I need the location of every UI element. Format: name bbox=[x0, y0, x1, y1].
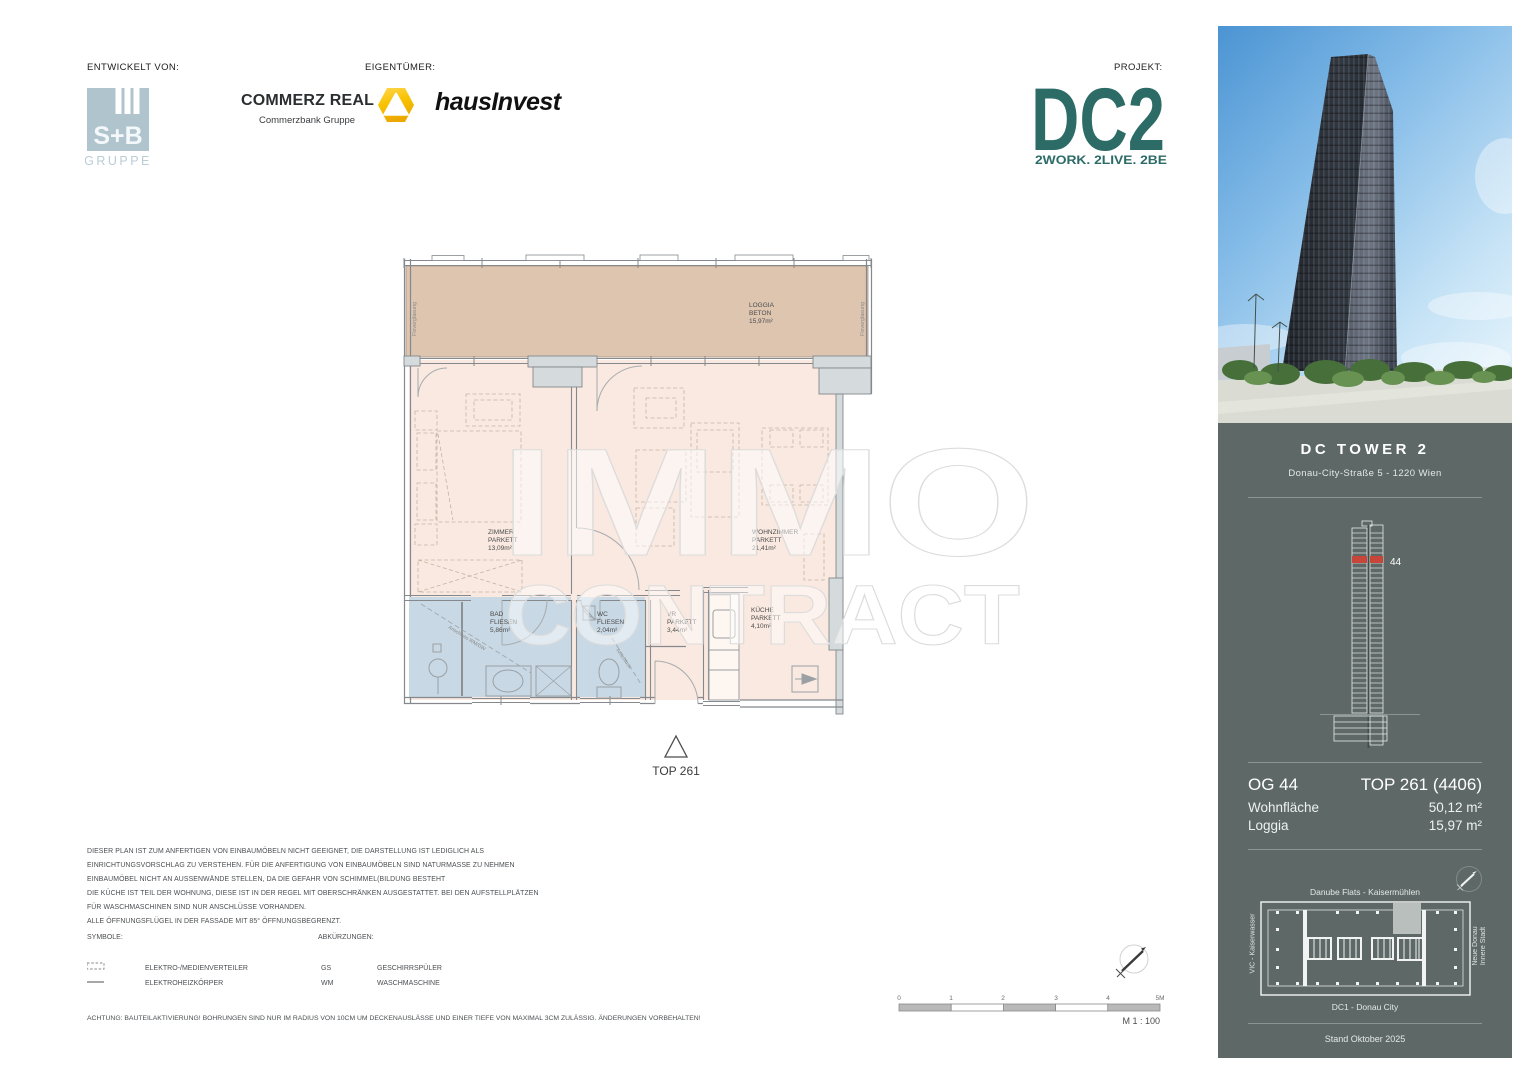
svg-text:2: 2 bbox=[1001, 995, 1005, 1002]
svg-text:44: 44 bbox=[1390, 557, 1402, 568]
svg-text:LOGGIA: LOGGIA bbox=[749, 302, 775, 309]
svg-text:Fixverglasung: Fixverglasung bbox=[412, 302, 418, 336]
svg-text:CONTRACT: CONTRACT bbox=[505, 568, 1020, 662]
svg-text:Fixverglasung: Fixverglasung bbox=[860, 302, 866, 336]
svg-text:3: 3 bbox=[1054, 995, 1058, 1002]
svg-text:4: 4 bbox=[1106, 995, 1110, 1002]
svg-text:BAD: BAD bbox=[490, 611, 504, 618]
svg-text:ELEKTRO-/MEDIENVERTEILER: ELEKTRO-/MEDIENVERTEILER bbox=[145, 965, 248, 972]
svg-text:15,97m²: 15,97m² bbox=[749, 318, 774, 325]
svg-text:TOP 261: TOP 261 bbox=[652, 764, 700, 778]
svg-text:5M: 5M bbox=[1155, 995, 1164, 1002]
svg-text:IMMO: IMMO bbox=[500, 417, 1035, 588]
svg-text:ELEKTROHEIZKÖRPER: ELEKTROHEIZKÖRPER bbox=[145, 979, 223, 987]
svg-text:WM: WM bbox=[321, 980, 334, 987]
svg-text:0: 0 bbox=[897, 995, 901, 1002]
svg-text:WASCHMASCHINE: WASCHMASCHINE bbox=[377, 980, 440, 987]
svg-text:1: 1 bbox=[949, 995, 953, 1002]
svg-text:BETON: BETON bbox=[749, 310, 772, 317]
svg-text:GS: GS bbox=[321, 965, 331, 972]
svg-text:M 1 : 100: M 1 : 100 bbox=[1122, 1016, 1160, 1026]
svg-text:GESCHIRRSPÜLER: GESCHIRRSPÜLER bbox=[377, 964, 442, 972]
